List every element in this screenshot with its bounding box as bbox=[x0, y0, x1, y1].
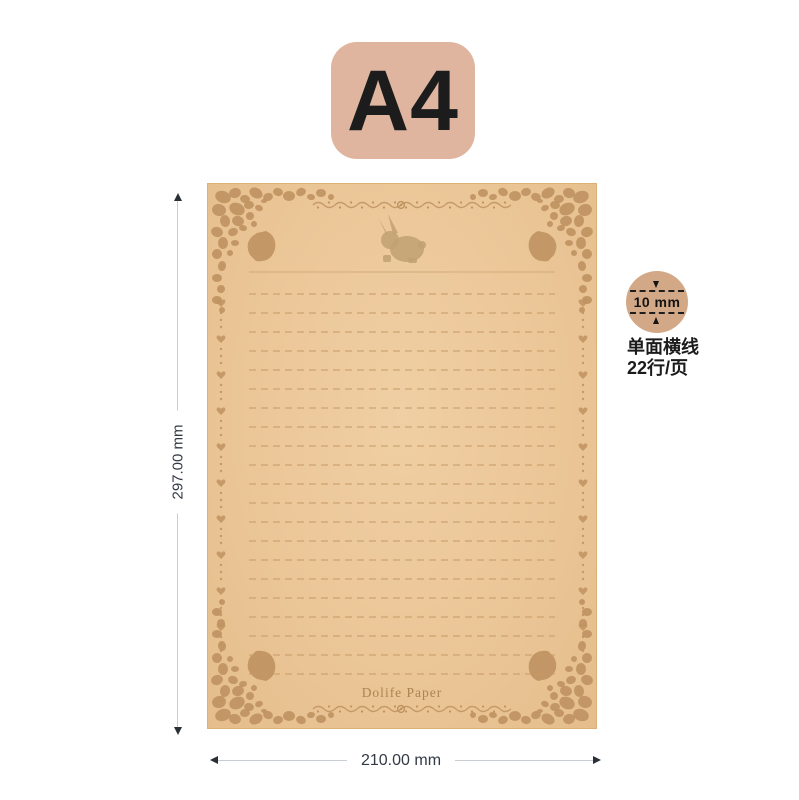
size-badge-label: A4 bbox=[347, 58, 459, 144]
brand-label: Dolife Paper bbox=[362, 685, 443, 700]
writing-lines bbox=[249, 272, 555, 674]
spacing-dashed-line-bottom bbox=[630, 312, 684, 314]
spacing-dashed-line-top bbox=[630, 290, 684, 292]
arrow-up-icon bbox=[653, 317, 659, 324]
spec-text-line1: 单面横线 bbox=[627, 337, 699, 358]
spec-text-line2: 22行/页 bbox=[627, 358, 699, 379]
bottom-scroll-border bbox=[313, 705, 511, 712]
product-spec-image: A4 Dolife Paper 297.00 mm bbox=[0, 0, 799, 800]
spec-text: 单面横线 22行/页 bbox=[627, 337, 699, 379]
arrow-up-icon bbox=[174, 193, 182, 201]
width-dimension-label: 210.00 mm bbox=[347, 749, 455, 773]
arrow-right-icon bbox=[593, 756, 601, 764]
arrow-down-icon bbox=[653, 281, 659, 288]
line-spacing-label: 10 mm bbox=[626, 294, 688, 310]
size-badge: A4 bbox=[331, 42, 475, 159]
arrow-left-icon bbox=[210, 756, 218, 764]
rabbit-icon bbox=[378, 214, 426, 263]
line-spacing-badge: 10 mm bbox=[626, 271, 688, 333]
letter-paper: Dolife Paper bbox=[207, 183, 597, 729]
top-scroll-border bbox=[313, 201, 511, 208]
paper-artwork: Dolife Paper bbox=[207, 183, 597, 729]
side-ornament-chains bbox=[217, 299, 588, 652]
height-dimension-label: 297.00 mm bbox=[166, 410, 191, 513]
arrow-down-icon bbox=[174, 727, 182, 735]
floral-corner-ornaments bbox=[210, 185, 595, 727]
